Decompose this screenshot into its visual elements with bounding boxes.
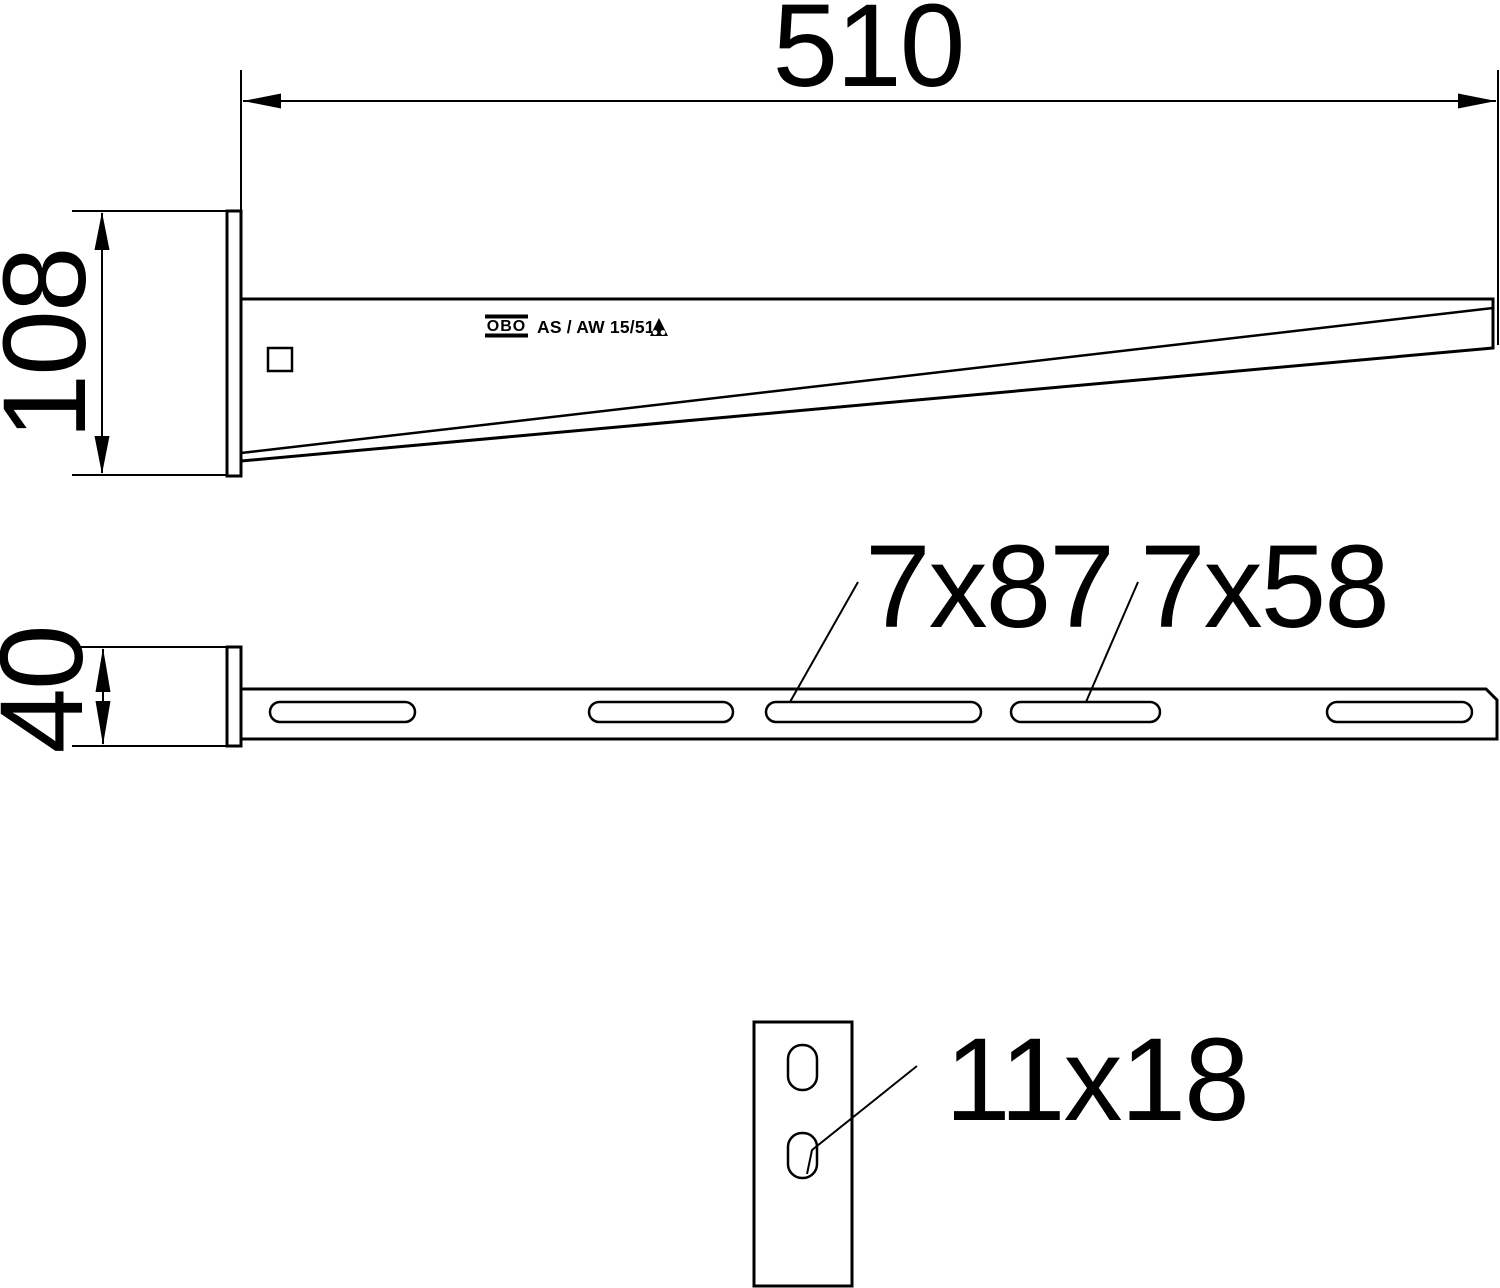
plan-view: 40 7x87 7x58 <box>0 521 1497 754</box>
part-marking: OBO AS / AW 15/51 <box>485 317 668 338</box>
slot-short-label: 7x58 <box>1140 521 1388 653</box>
front-plate-view: 11x18 <box>754 1014 1248 1286</box>
obo-logo-text: OBO <box>487 318 526 335</box>
dim-108-label: 108 <box>0 249 111 440</box>
wall-plate-front <box>754 1022 852 1286</box>
dim-40-label: 40 <box>0 626 108 753</box>
dim-510-arrow-right <box>1458 94 1496 109</box>
dim-510-arrow-left <box>243 94 281 109</box>
dim-510-label: 510 <box>773 0 964 112</box>
wall-plate-plan <box>227 647 241 746</box>
dim-108-arrow-down <box>95 436 110 474</box>
plate-hole-label: 11x18 <box>945 1014 1248 1146</box>
model-marking-text: AS / AW 15/51 <box>537 317 655 337</box>
wall-plate-side <box>227 211 241 476</box>
dim-108-arrow-up <box>95 212 110 250</box>
side-view: 510 108 OBO AS / AW 15/51 <box>0 0 1498 476</box>
leader-slot-long <box>790 582 858 702</box>
technical-drawing-page: 510 108 OBO AS / AW 15/51 <box>0 0 1500 1288</box>
drawing-svg: 510 108 OBO AS / AW 15/51 <box>0 0 1500 1288</box>
slot-long-label: 7x87 <box>865 521 1113 653</box>
bracket-arm-plan-outline <box>241 689 1497 739</box>
